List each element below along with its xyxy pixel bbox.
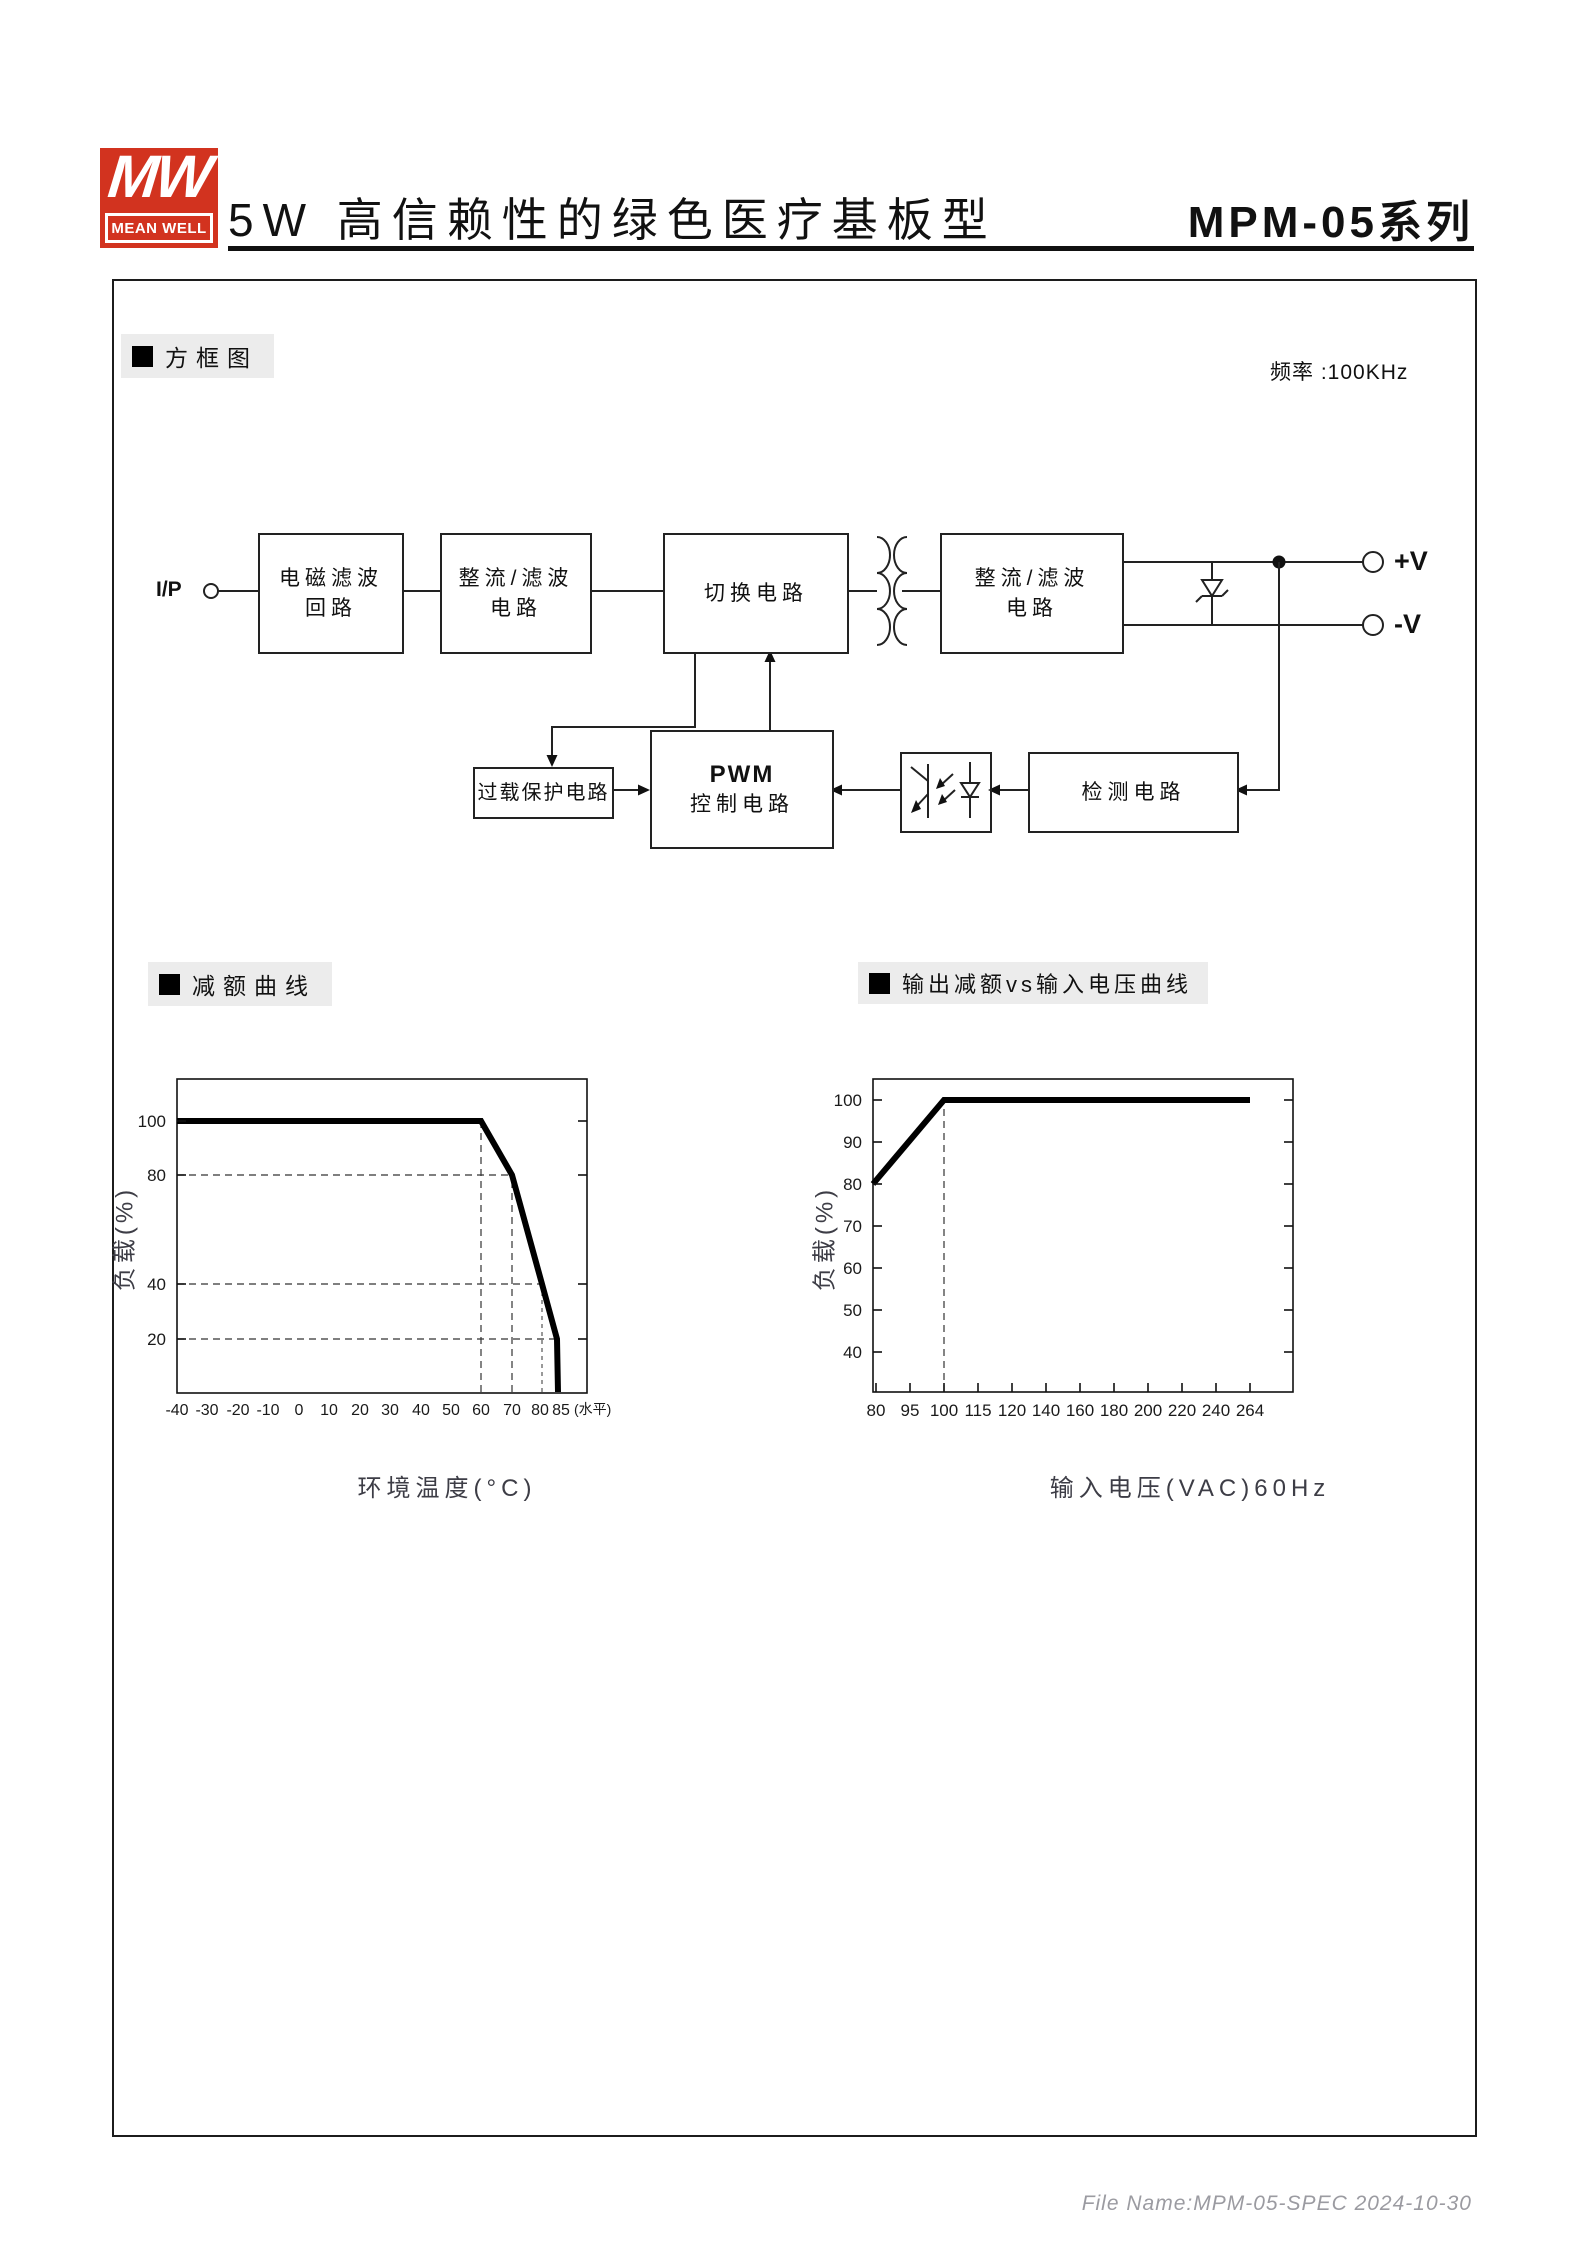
block-label-line: 整流/滤波: [975, 564, 1090, 594]
diagram-and-charts-canvas: 100 80 40 20 -40 -30 -20 -10 0 10 20 30 …: [0, 0, 1587, 2245]
x-tick-label: 115: [964, 1401, 991, 1420]
x-tick-label: 80: [531, 1402, 549, 1419]
y-tick-labels: 100 80 40 20: [138, 1112, 166, 1349]
x-tick-label: 120: [998, 1401, 1026, 1420]
block-label-line: 电路: [1006, 594, 1058, 624]
x-tick-label: 60: [472, 1402, 490, 1419]
input-terminal-icon: [204, 584, 218, 598]
transformer-primary-coil-icon: [877, 537, 890, 645]
block-detection-circuit: 检测电路: [1028, 752, 1239, 833]
block-label-line: 控制电路: [690, 790, 794, 820]
x-tick-label: 70: [503, 1402, 521, 1419]
y-tick-label: 60: [843, 1259, 862, 1278]
axis-ticks: [873, 1100, 1293, 1392]
derating-curve: [177, 1121, 558, 1392]
y-tick-label: 40: [147, 1275, 166, 1294]
x-tick-label: 40: [412, 1402, 430, 1419]
y-tick-label: 20: [147, 1330, 166, 1349]
arrowhead-icon: [638, 785, 650, 796]
x-tick-label: 85: [552, 1402, 570, 1419]
block-switching-circuit: 切换电路: [663, 533, 849, 654]
plot-frame: [873, 1079, 1293, 1392]
block-label-line: 电路: [490, 594, 542, 624]
x-tick-label: -10: [256, 1402, 279, 1419]
x-tick-label: 200: [1134, 1401, 1162, 1420]
y-tick-label: 50: [843, 1301, 862, 1320]
x-tick-label: -40: [165, 1402, 188, 1419]
y-tick-label: 100: [834, 1091, 862, 1110]
x-tick-label: 20: [351, 1402, 369, 1419]
y-tick-label: 40: [843, 1343, 862, 1362]
x-tick-label: 80: [867, 1401, 886, 1420]
x-tick-label: 140: [1032, 1401, 1060, 1420]
block-emi-filter: 电磁滤波 回路: [258, 533, 404, 654]
block-pwm-control: PWM 控制电路: [650, 730, 834, 849]
x-tick-label: 50: [442, 1402, 460, 1419]
x-tick-label: -30: [195, 1402, 218, 1419]
x-tick-label: 220: [1168, 1401, 1196, 1420]
plot-frame: [177, 1079, 587, 1393]
datasheet-page: { "header": { "logo_mw": "MW", "logo_nam…: [0, 0, 1587, 2245]
block-label-line: 回路: [305, 594, 357, 624]
block-label-line: 切换电路: [704, 579, 808, 609]
arrowhead-icon: [547, 755, 558, 767]
block-label-line: PWM: [710, 760, 775, 790]
block-rectifier-filter-1: 整流/滤波 电路: [440, 533, 592, 654]
x-axis-suffix-note: (水平): [574, 1401, 611, 1417]
negative-output-terminal-icon: [1363, 615, 1383, 635]
input-label: I/P: [156, 578, 182, 602]
block-label-line: 过载保护电路: [478, 778, 610, 808]
x-tick-label: 264: [1236, 1401, 1264, 1420]
x-tick-label: 240: [1202, 1401, 1230, 1420]
y-tick-label: 80: [147, 1166, 166, 1185]
derating-chart: 100 80 40 20 -40 -30 -20 -10 0 10 20 30 …: [138, 1079, 612, 1419]
output-derating-curve: [873, 1100, 1250, 1184]
x-tick-label: 30: [381, 1402, 399, 1419]
block-label-line: 检测电路: [1082, 778, 1186, 808]
zener-diode-icon: [1196, 562, 1228, 625]
y-tick-label: 80: [843, 1175, 862, 1194]
block-overload-protection: 过载保护电路: [473, 767, 614, 819]
block-label-line: 电磁滤波: [279, 564, 383, 594]
x-tick-labels: -40 -30 -20 -10 0 10 20 30 40 50 60 70 8…: [165, 1402, 570, 1419]
block-label-line: 整流/滤波: [459, 564, 574, 594]
y-tick-labels: 100 90 80 70 60 50 40: [834, 1091, 862, 1362]
x-tick-label: 100: [930, 1401, 958, 1420]
x-tick-label: 160: [1066, 1401, 1094, 1420]
x-tick-label: -20: [226, 1402, 249, 1419]
x-tick-label: 95: [901, 1401, 920, 1420]
positive-output-terminal-icon: [1363, 552, 1383, 572]
dashed-guides: [177, 1121, 557, 1392]
x-tick-label: 10: [320, 1402, 338, 1419]
x-tick-label: 0: [295, 1402, 304, 1419]
output-derating-chart: 100 90 80 70 60 50 40 80 95 100 115 120 …: [834, 1079, 1293, 1420]
block-rectifier-filter-2: 整流/滤波 电路: [940, 533, 1124, 654]
block-optocoupler: [900, 752, 992, 833]
negative-output-label: -V: [1394, 609, 1421, 640]
x-tick-label: 180: [1100, 1401, 1128, 1420]
y-tick-label: 70: [843, 1217, 862, 1236]
x-tick-labels: 80 95 100 115 120 140 160 180 200 220 24…: [867, 1401, 1265, 1420]
positive-output-label: +V: [1394, 546, 1428, 577]
y-tick-label: 90: [843, 1133, 862, 1152]
y-tick-label: 100: [138, 1112, 166, 1131]
